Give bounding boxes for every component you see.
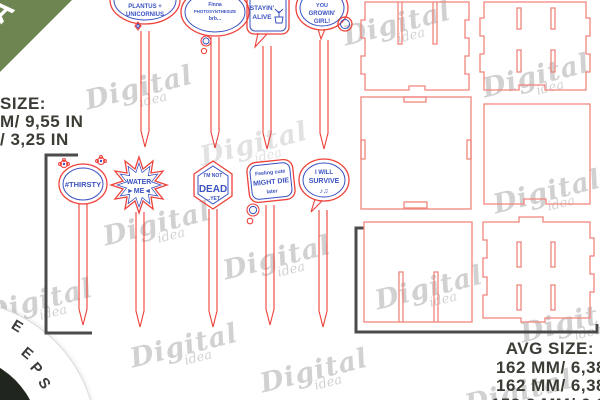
svg-text:►ME◄: ►ME◄ [127,188,151,195]
box-panel-bottom-left [364,222,472,322]
box-panel-middle-left [361,97,471,209]
potted-plant-icon [275,9,283,23]
box-panel-top-left [361,2,469,90]
stake-stem [266,205,274,325]
stake-plantus-unicornius: PLANTUS + UNICORNIUS [110,0,180,147]
svg-text:YOU: YOU [316,3,328,9]
stake-stem [319,210,327,327]
stake-i-will-survive: I WILL SURVIVE ♪♫ [299,159,349,327]
size-bracket-right [356,228,597,332]
stake-stem [136,212,144,327]
stake-stem [79,204,87,325]
box-avg-size-text: AVG SIZE: 162 MM/ 6,38 162 MM/ 6,38 152,… [491,340,600,400]
flower-decoration [96,156,107,165]
stake-stem [320,40,328,149]
svg-text:...YET: ...YET [206,196,220,202]
svg-text:PHOTOSYNTHESIZE: PHOTOSYNTHESIZE [194,9,236,14]
svg-text:STAYIN': STAYIN' [250,5,275,12]
svg-text:I'M NOT: I'M NOT [204,173,223,179]
stake-dead: I'M NOT DEAD ...YET [194,161,232,327]
stake-you-growin-girl: YOU GROWIN' GIRL! [296,0,352,149]
product-mockup: Digitalidea Digitalidea Digitalidea Digi… [0,0,600,400]
svg-text:I WILL: I WILL [315,170,333,176]
svg-text:WATER: WATER [127,179,152,186]
corner-ribbon-letter: A [0,0,22,31]
flower-decoration [59,159,70,168]
svg-text:brb...: brb... [209,16,222,22]
stake-size-text: SIZE: M/ 9,55 IN / 3,25 IN [0,95,83,149]
svg-text:GROWIN': GROWIN' [309,11,336,17]
svg-text:GIRL!: GIRL! [314,19,330,25]
box-panel-bottom-right [483,217,594,322]
svg-text:♪♫: ♪♫ [320,188,329,195]
stake-thirsty: #THIRSTY [59,156,107,325]
svg-text:later: later [266,188,278,195]
stake-might-die: Feeling cute MIGHT DIE later [246,159,296,325]
stake-water-me: WATER ►ME◄ [111,157,167,327]
svg-text:PLANTUS +: PLANTUS + [128,4,162,10]
svg-text:DEAD: DEAD [199,184,227,195]
stake-stem [209,209,217,327]
svg-text:MIGHT DIE: MIGHT DIE [253,177,290,188]
svg-text:Feeling cute: Feeling cute [255,168,286,177]
stake-finna-photosynthesize: Finna PHOTOSYNTHESIZE brb... [181,0,249,148]
stake-stem [141,31,149,147]
svg-text:Finna: Finna [208,2,222,8]
svg-text:SURVIVE: SURVIVE [309,178,340,185]
svg-text:#THIRSTY: #THIRSTY [65,180,101,189]
stake-stem [263,46,271,149]
svg-text:UNICORNIUS: UNICORNIUS [126,12,164,18]
box-panel-middle-right [484,104,590,204]
svg-text:ALIVE: ALIVE [252,14,272,21]
box-panel-top-right [480,2,590,90]
stake-stem [211,37,219,148]
stake-stayin-alive: STAYIN' ALIVE [247,0,289,149]
